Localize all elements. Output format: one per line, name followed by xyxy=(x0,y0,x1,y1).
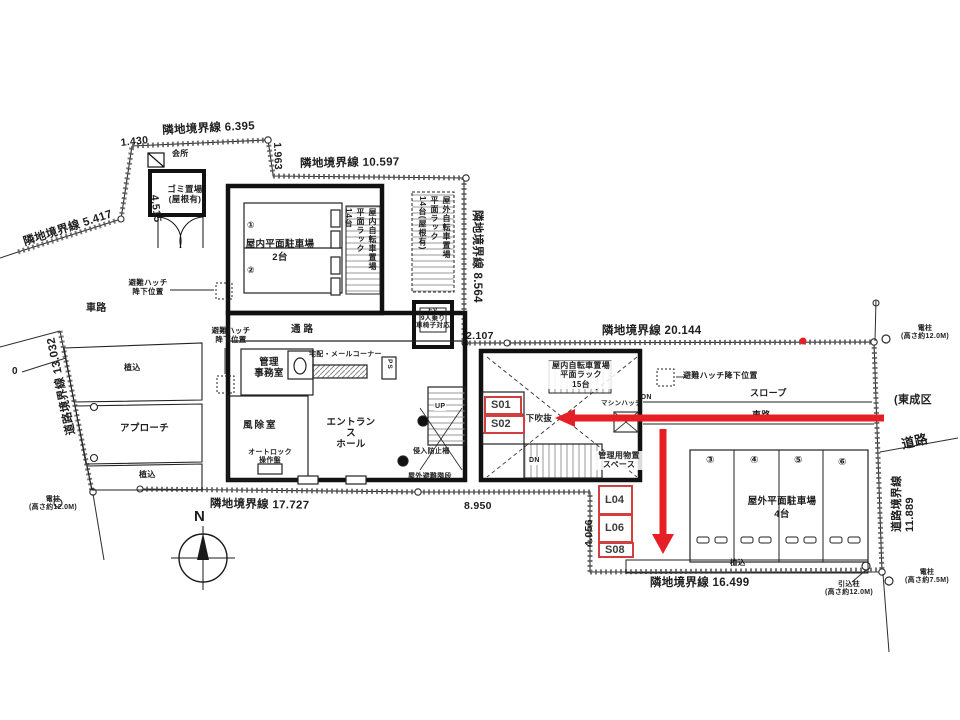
stall-number-3: ③ xyxy=(706,455,715,467)
room-corridor: 通路 xyxy=(291,324,316,335)
utility-pole-note-bottom-right: 電柱 (高さ約7.5M) xyxy=(898,569,956,586)
north-label: N xyxy=(194,508,205,526)
boundary-label-10597: 隣地境界線 10.597 xyxy=(300,156,400,171)
note-outdoor-evac-stair: 屋外避難階段 xyxy=(408,473,452,481)
note-machine-hatch: マシンハッチ xyxy=(601,400,642,408)
room-indoor-parking-count: 2台 xyxy=(240,252,320,263)
dim-2107: 2.107 xyxy=(466,330,494,342)
room-garbage-area: ゴミ置場 (屋根有) xyxy=(157,184,213,204)
planting-label-2: 植込 xyxy=(139,470,156,479)
utility-pole-icons xyxy=(54,335,893,585)
room-junction-box: 会所 xyxy=(172,149,189,158)
red-tag-s02: S02 xyxy=(484,415,525,434)
room-indoor-bike-rack-15: 屋内自転車置場 平面ラック 15台 xyxy=(545,361,617,389)
boundary-label-13032: 道路境界線 13.032 xyxy=(45,336,79,436)
dim-4056: 4.056 xyxy=(583,519,595,547)
stall-number-6: ⑥ xyxy=(838,457,847,469)
room-entrance-hall: エントランス ホール xyxy=(322,417,380,451)
boundary-label-17727: 隣地境界線 17.727 xyxy=(210,498,310,513)
dim-1430: 1.430 xyxy=(120,134,149,149)
red-tag-s01: S01 xyxy=(484,396,522,415)
north-arrow-icon xyxy=(171,526,235,590)
stall-number-1: ① xyxy=(247,220,255,231)
room-indoor-bike-rack: 屋内自転車置場 平面ラック 14台 xyxy=(344,208,378,294)
room-mail-corner: 宅配・メールコーナー xyxy=(309,351,382,359)
room-indoor-parking: 屋内平面駐車場 xyxy=(240,239,320,250)
area-driveway-left: 車路 xyxy=(86,303,107,315)
stall-number-4: ④ xyxy=(750,455,759,467)
road-label: 道路 xyxy=(900,431,929,452)
planting-label-1: 植込 xyxy=(124,363,141,372)
room-management-office: 管理 事務室 xyxy=(247,357,291,379)
dim-zero: 0 xyxy=(12,366,18,378)
red-dot-marker xyxy=(800,338,807,345)
red-arrow-horizontal xyxy=(555,409,884,427)
area-driveway-right: 車路 xyxy=(752,410,771,421)
note-autolock-panel: オートロック 操作盤 xyxy=(246,449,294,466)
room-outdoor-bike-rack: 屋外自転車置場 平面ラック 14台(屋根有) xyxy=(412,196,452,290)
service-pole-note: 引込柱 (高さ約12.0M) xyxy=(820,581,878,598)
room-windbreak: 風除室 xyxy=(243,420,278,431)
utility-pole-note-top-right: 電柱 (高さ約12.0M) xyxy=(894,325,956,342)
street-name-label: (東成区 xyxy=(894,394,932,407)
area-slope: スロープ xyxy=(750,388,787,399)
boundary-label-6395: 隣地境界線 6.395 xyxy=(162,120,255,138)
stall-number-5: ⑤ xyxy=(794,455,803,467)
note-intrusion-fence: 侵入防止柵 xyxy=(413,448,450,456)
dim-1963: 1.963 xyxy=(271,142,284,170)
boundary-label-8564: 隣地境界線 8.564 xyxy=(469,210,483,303)
boundary-label-20144: 隣地境界線 20.144 xyxy=(602,325,701,339)
dim-8950: 8.950 xyxy=(464,500,492,512)
room-storage-space: 管理用物置 スペース xyxy=(593,451,645,470)
room-outdoor-parking-count: 4台 xyxy=(742,509,822,520)
note-evac-hatch-2: 避難ハッチ 降下位置 xyxy=(209,327,253,345)
red-arrow-vertical xyxy=(652,429,674,554)
area-approach: アプローチ xyxy=(120,423,169,434)
red-annotations xyxy=(0,0,960,720)
boundary-label-11889: 道路境界線 11.889 xyxy=(891,463,917,532)
boundary-label-5417: 隣地境界線 5.417 xyxy=(22,208,114,250)
boundary-label-16499: 隣地境界線 16.499 xyxy=(650,577,749,591)
stair-dn-label-2: DN xyxy=(528,457,541,465)
site-context-lines xyxy=(0,252,958,652)
planting-label-3: 植込 xyxy=(730,559,746,568)
red-tag-l06: L06 xyxy=(598,514,633,543)
site-plan-drawing: 1.430 隣地境界線 6.395 1.963 隣地境界線 10.597 隣地境… xyxy=(0,0,960,720)
floor-plan-linework xyxy=(0,0,960,720)
note-evac-hatch-3: 避難ハッチ降下位置 xyxy=(683,371,758,380)
note-evac-hatch-1: 避難ハッチ 降下位置 xyxy=(126,279,170,297)
red-tag-s08: S08 xyxy=(598,542,634,558)
stair-up-label: UP xyxy=(434,403,446,411)
red-tag-l04: L04 xyxy=(598,485,633,515)
room-pipe-shaft: PS xyxy=(384,359,394,379)
stall-number-2: ② xyxy=(247,265,255,276)
stair-dn-label-1: DN xyxy=(641,394,652,402)
utility-pole-note-bottom-left: 電柱 (高さ約12.0M) xyxy=(26,496,80,513)
room-elevator: EV 9人乗り (車椅子対応) xyxy=(413,307,453,330)
room-outdoor-parking: 屋外平面駐車場 xyxy=(742,496,822,507)
